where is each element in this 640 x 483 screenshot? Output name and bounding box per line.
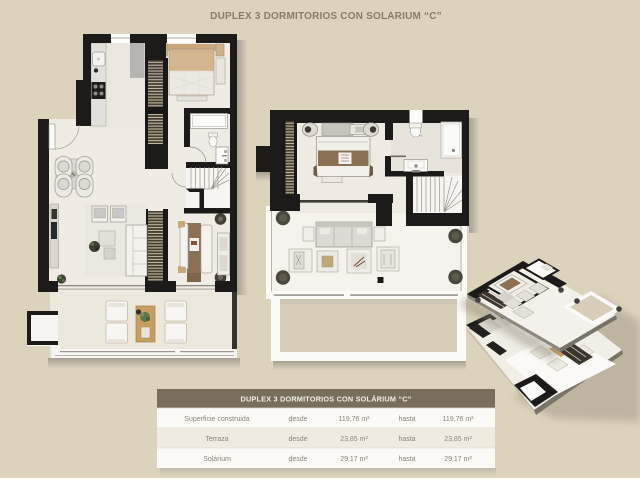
svg-text:29,17 m²: 29,17 m² [340,456,368,463]
svg-text:DUPLEX 3 DORMITORIOS CON SOLAR: DUPLEX 3 DORMITORIOS CON SOLARIUM “C” [210,11,442,22]
svg-text:29,17 m²: 29,17 m² [444,456,472,463]
svg-text:Terraza: Terraza [205,436,228,443]
svg-text:DUPLEX 3 DORMITORIOS CON SOLÁR: DUPLEX 3 DORMITORIOS CON SOLÁRIUM “C” [240,395,411,404]
svg-text:desde: desde [288,456,307,463]
svg-text:Solárium: Solárium [203,456,231,463]
svg-text:23,85 m²: 23,85 m² [444,436,472,443]
svg-text:desde: desde [288,436,307,443]
svg-text:hasta: hasta [398,456,415,463]
svg-text:hasta: hasta [398,416,415,423]
svg-text:hasta: hasta [398,436,415,443]
svg-text:23,85 m²: 23,85 m² [340,436,368,443]
svg-text:Superficie construida: Superficie construida [184,416,249,423]
svg-text:119,76 m²: 119,76 m² [339,416,371,423]
svg-text:119,76 m²: 119,76 m² [443,416,475,423]
svg-text:desde: desde [288,416,307,423]
